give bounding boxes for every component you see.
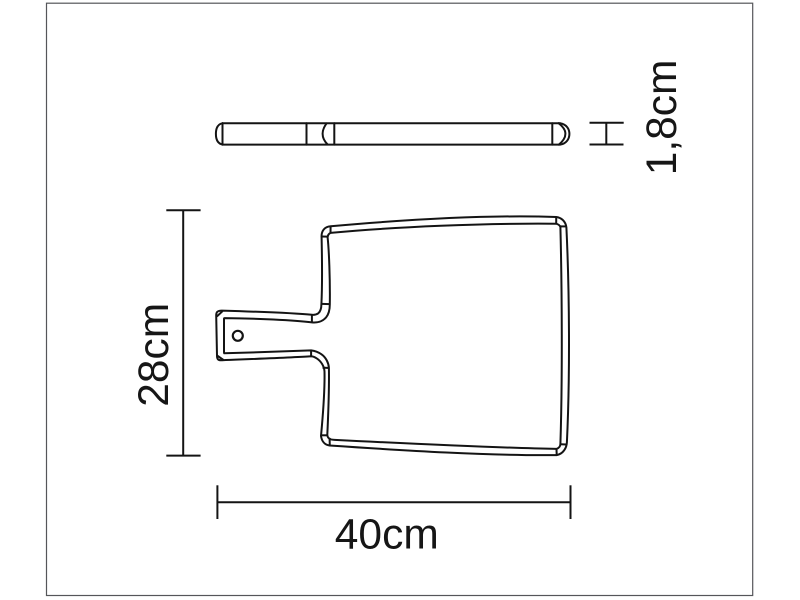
svg-text:1,8cm: 1,8cm xyxy=(639,60,686,176)
svg-text:28cm: 28cm xyxy=(131,303,178,407)
svg-text:40cm: 40cm xyxy=(335,511,439,558)
